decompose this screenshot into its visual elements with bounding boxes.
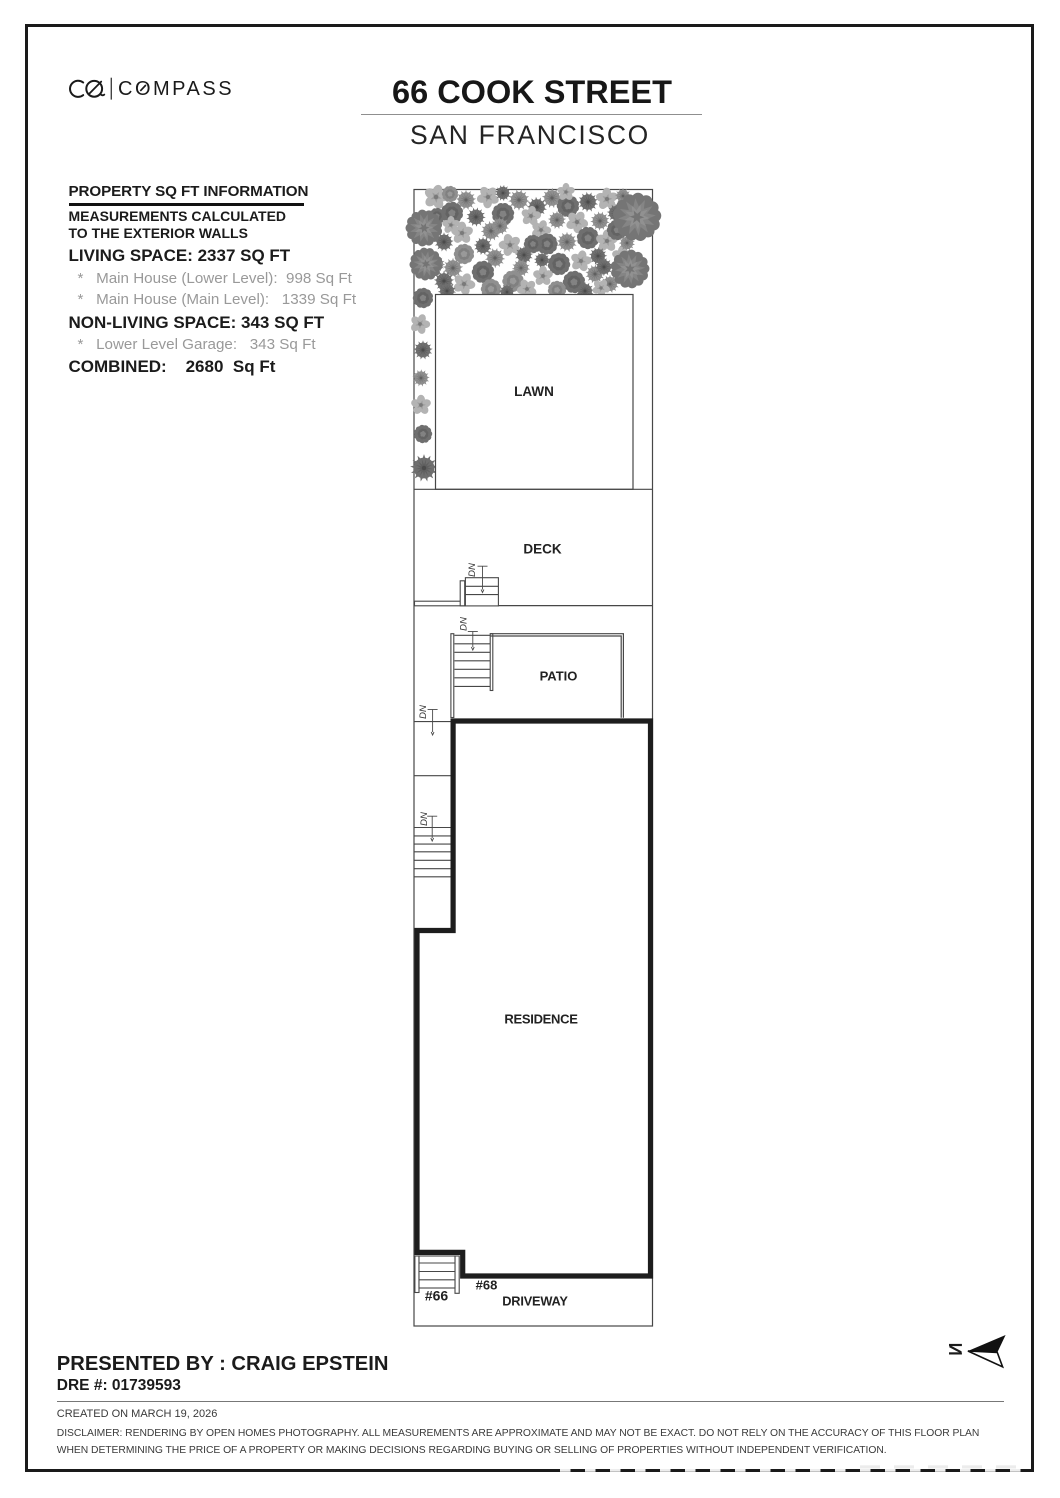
svg-text:LAWN: LAWN (514, 384, 554, 399)
svg-text:#68: #68 (476, 1277, 498, 1292)
svg-text:RESIDENCE: RESIDENCE (504, 1011, 578, 1026)
svg-text:DN: DN (459, 617, 470, 631)
svg-text:DN: DN (419, 812, 430, 826)
svg-text:DN: DN (418, 705, 429, 719)
svg-text:DECK: DECK (523, 542, 562, 557)
svg-text:DRIVEWAY: DRIVEWAY (502, 1294, 568, 1309)
svg-text:PATIO: PATIO (540, 669, 578, 684)
svg-text:DN: DN (467, 563, 478, 577)
svg-text:#66: #66 (425, 1287, 449, 1303)
